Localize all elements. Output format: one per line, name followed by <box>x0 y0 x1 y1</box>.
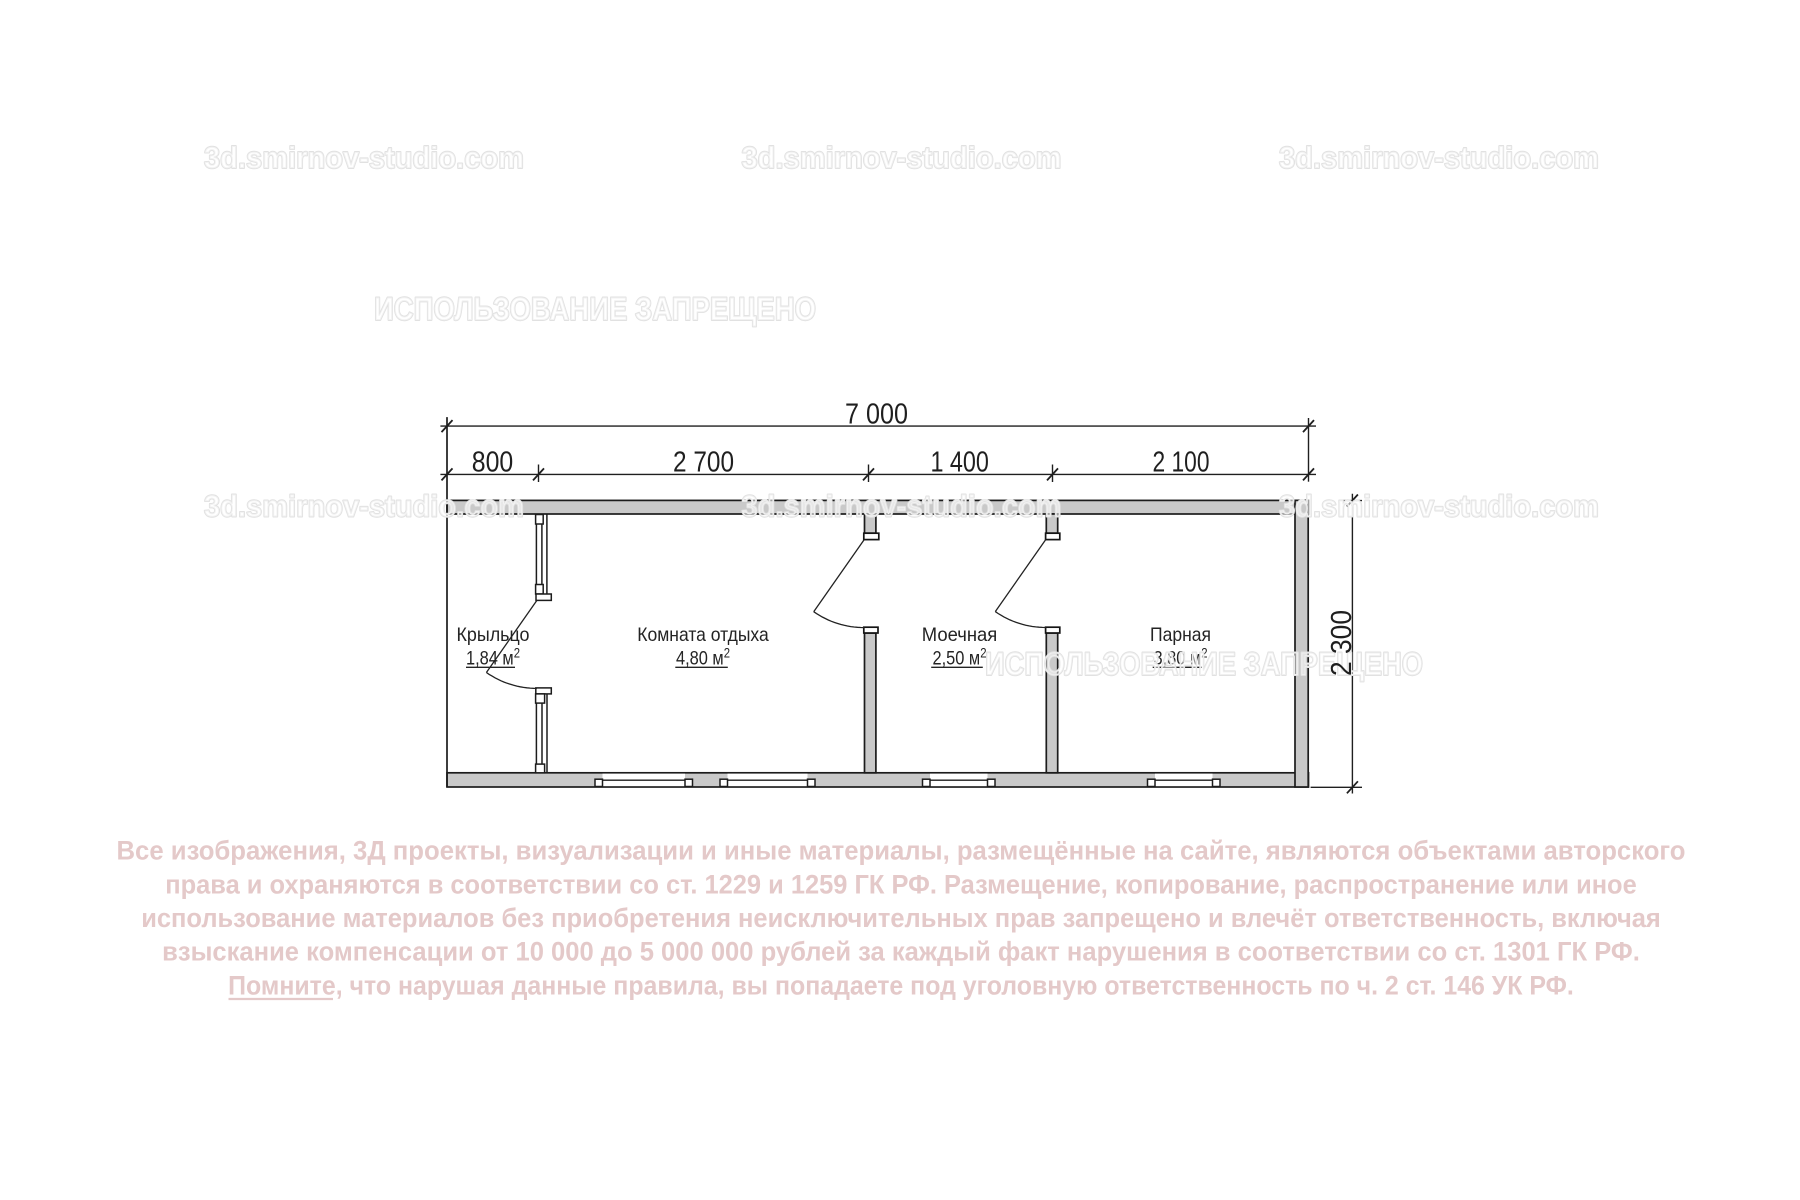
svg-text:2 300: 2 300 <box>1326 610 1358 676</box>
svg-text:Комната отдыха: Комната отдыха <box>637 624 769 646</box>
svg-text:800: 800 <box>472 446 514 478</box>
svg-text:Парная: Парная <box>1150 624 1211 646</box>
svg-text:Крыльцо: Крыльцо <box>457 624 530 646</box>
svg-text:3d.smirnov-studio.com: 3d.smirnov-studio.com <box>1279 489 1599 524</box>
svg-text:использование материалов без п: использование материалов без приобретени… <box>141 903 1661 933</box>
svg-text:3d.smirnov-studio.com: 3d.smirnov-studio.com <box>742 489 1062 524</box>
svg-text:2,50 м2: 2,50 м2 <box>933 646 987 670</box>
svg-text:права и охраняются в соответст: права и охраняются в соответствии со ст.… <box>165 869 1637 899</box>
svg-text:ИСПОЛЬЗОВАНИЕ ЗАПРЕЩЕНО: ИСПОЛЬЗОВАНИЕ ЗАПРЕЩЕНО <box>374 291 816 327</box>
svg-text:7 000: 7 000 <box>845 398 908 430</box>
svg-text:3d.smirnov-studio.com: 3d.smirnov-studio.com <box>1279 140 1599 175</box>
svg-text:1,84 м2: 1,84 м2 <box>466 646 520 670</box>
svg-text:2 700: 2 700 <box>673 446 734 478</box>
svg-text:3d.smirnov-studio.com: 3d.smirnov-studio.com <box>204 140 524 175</box>
svg-text:Помните, что нарушая данные пр: Помните, что нарушая данные правила, вы … <box>228 970 1574 1000</box>
svg-text:Моечная: Моечная <box>922 624 998 646</box>
svg-text:1 400: 1 400 <box>930 446 989 478</box>
svg-text:4,80 м2: 4,80 м2 <box>676 646 730 670</box>
svg-text:Все изображения, 3Д проекты, в: Все изображения, 3Д проекты, визуализаци… <box>117 836 1686 866</box>
svg-text:3d.smirnov-studio.com: 3d.smirnov-studio.com <box>742 140 1062 175</box>
svg-text:2 100: 2 100 <box>1153 446 1210 478</box>
svg-text:3d.smirnov-studio.com: 3d.smirnov-studio.com <box>204 489 524 524</box>
svg-text:взыскание компенсации от 10 00: взыскание компенсации от 10 000 до 5 000… <box>162 937 1640 967</box>
